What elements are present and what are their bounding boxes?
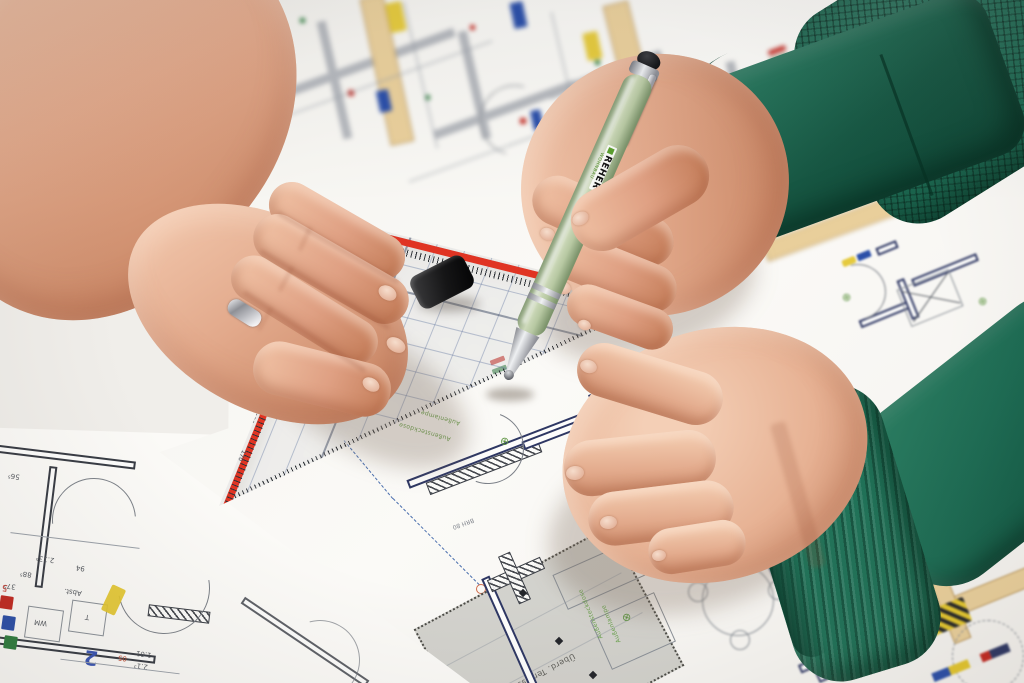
washing-machine-box: WM xyxy=(24,606,64,643)
plan-wall xyxy=(0,636,156,663)
window-x-rect xyxy=(897,269,964,327)
wall-height-label: BRH 80 xyxy=(451,516,474,530)
legend-red-block xyxy=(0,595,14,610)
chair-symbol xyxy=(730,630,750,650)
dimension-label: 56⁵ xyxy=(8,471,21,481)
legend-blue-block xyxy=(1,615,16,631)
brand-logo-square xyxy=(607,147,615,155)
dryer-label: T xyxy=(85,613,90,622)
photo-blueprint-scene: 56⁵ 2.13⁵ 88⁵ 94 37⁵ Abst. WM T 5 2 05 1… xyxy=(0,0,1024,683)
plan-wall xyxy=(0,444,136,469)
mini-strip-blue xyxy=(856,250,872,262)
pen-tip-shadow xyxy=(486,388,534,401)
door-arc xyxy=(265,605,374,683)
blue-dashed-line xyxy=(393,498,480,585)
washing-machine-label: WM xyxy=(34,618,48,628)
dimension-label: 94 xyxy=(75,563,85,572)
legend-green-block xyxy=(3,635,18,650)
x-line xyxy=(913,272,948,322)
room-number-blue: 2 xyxy=(82,645,99,671)
dimension-label: 88⁵ xyxy=(20,569,33,579)
electric-symbol-icon: ⊕ xyxy=(976,295,988,308)
small-wall xyxy=(875,240,898,256)
legend-number: 5 xyxy=(1,582,8,593)
sheet-number-red: 05 xyxy=(117,653,127,662)
abstell-label: Abst. xyxy=(64,587,83,597)
